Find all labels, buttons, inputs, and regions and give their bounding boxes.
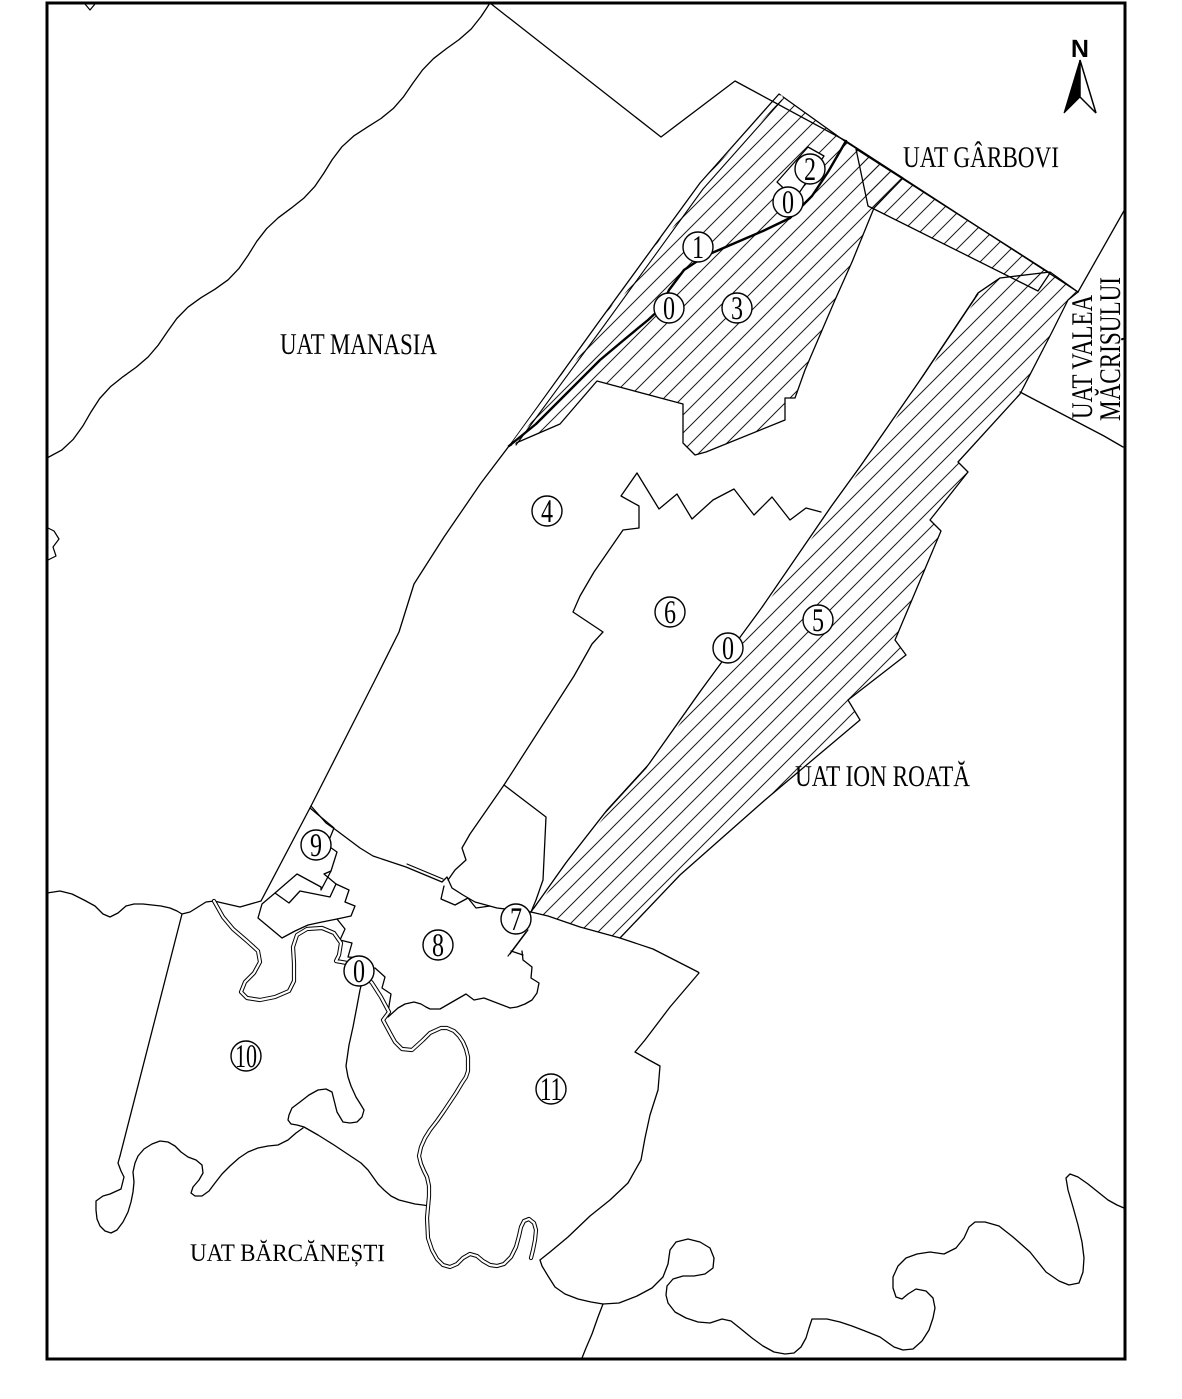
svg-text:0: 0 (353, 954, 365, 990)
svg-text:9: 9 (310, 828, 322, 864)
svg-text:0: 0 (663, 291, 675, 327)
svg-text:0: 0 (722, 631, 734, 667)
svg-text:N: N (1071, 35, 1089, 63)
svg-text:7: 7 (510, 902, 522, 938)
svg-text:4: 4 (541, 494, 553, 530)
svg-text:UAT GÂRBOVI: UAT GÂRBOVI (903, 141, 1059, 174)
svg-text:UAT ION ROATĂ: UAT ION ROATĂ (795, 760, 970, 793)
svg-text:8: 8 (432, 928, 444, 964)
svg-text:0: 0 (782, 185, 794, 221)
svg-text:10: 10 (235, 1039, 257, 1075)
svg-text:UAT MANASIA: UAT MANASIA (280, 328, 437, 361)
svg-text:5: 5 (812, 603, 824, 639)
svg-text:UAT BĂRCĂNEȘTI: UAT BĂRCĂNEȘTI (190, 1239, 385, 1267)
svg-text:2: 2 (804, 152, 816, 188)
svg-text:3: 3 (731, 291, 743, 327)
svg-text:1: 1 (692, 230, 704, 266)
svg-text:MĂCRIȘULUI: MĂCRIȘULUI (1094, 277, 1127, 421)
svg-text:6: 6 (664, 595, 676, 631)
svg-text:11: 11 (540, 1072, 562, 1108)
